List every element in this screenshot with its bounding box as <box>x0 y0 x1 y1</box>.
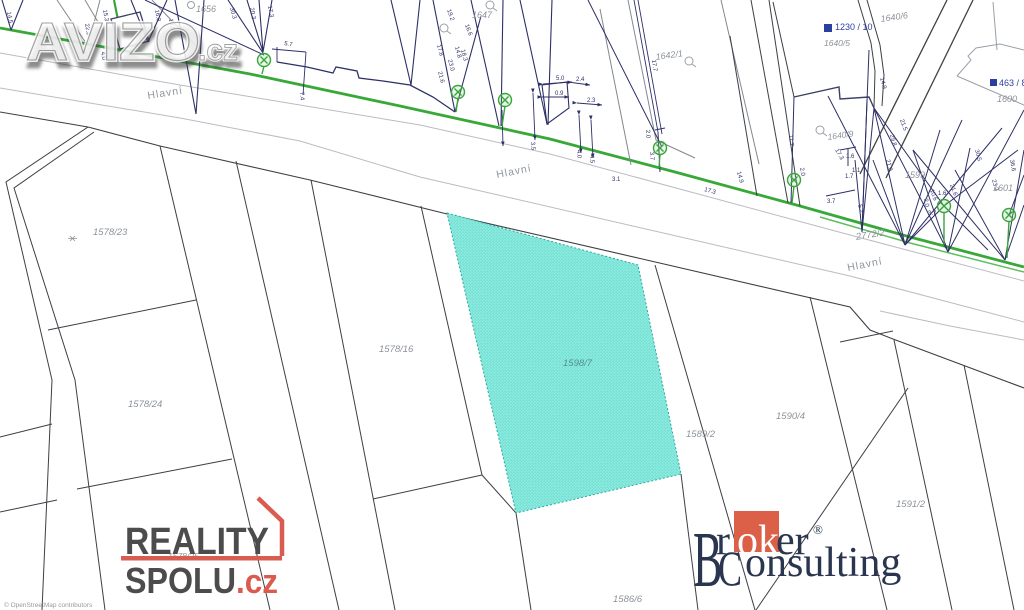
svg-text:1589/2: 1589/2 <box>686 429 716 440</box>
svg-text:0.9: 0.9 <box>555 91 564 97</box>
svg-text:C: C <box>718 541 742 596</box>
svg-text:1.7: 1.7 <box>845 174 854 180</box>
svg-text:2.0: 2.0 <box>644 130 651 139</box>
svg-text:1.1: 1.1 <box>852 168 861 174</box>
svg-text:© OpenStreetMap contributors: © OpenStreetMap contributors <box>4 601 93 609</box>
svg-text:3.7: 3.7 <box>648 152 655 161</box>
svg-text:2.4: 2.4 <box>576 77 585 83</box>
svg-text:5.0: 5.0 <box>556 76 565 82</box>
svg-text:1578/16: 1578/16 <box>379 344 414 355</box>
svg-text:11.7: 11.7 <box>787 135 794 147</box>
svg-text:1640/5: 1640/5 <box>824 38 850 48</box>
svg-text:1230 / 10: 1230 / 10 <box>835 22 873 32</box>
svg-text:1599: 1599 <box>905 170 925 180</box>
svg-text:4.0: 4.0 <box>575 150 582 159</box>
svg-text:.cz: .cz <box>236 563 278 601</box>
svg-text:1590/4: 1590/4 <box>776 411 805 422</box>
svg-text:onsulting: onsulting <box>745 540 901 586</box>
svg-text:1578/24: 1578/24 <box>128 399 162 410</box>
svg-text:AVIZO: AVIZO <box>26 12 200 72</box>
svg-text:3.7: 3.7 <box>827 199 836 205</box>
svg-text:1.6: 1.6 <box>846 154 855 160</box>
svg-text:.cz: .cz <box>198 34 238 67</box>
svg-text:4.5: 4.5 <box>588 155 595 164</box>
svg-text:®: ® <box>813 522 823 537</box>
svg-text:3.7: 3.7 <box>928 211 937 217</box>
svg-text:1598/7: 1598/7 <box>563 358 593 369</box>
svg-text:1.6: 1.6 <box>938 191 947 197</box>
svg-text:1591/2: 1591/2 <box>896 499 926 510</box>
svg-text:SPOLU: SPOLU <box>125 560 236 601</box>
svg-text:1578/23: 1578/23 <box>93 227 128 238</box>
svg-text:2.3: 2.3 <box>587 98 596 104</box>
svg-text:1601: 1601 <box>993 183 1013 193</box>
svg-text:3.5: 3.5 <box>529 142 536 151</box>
svg-text:7.4: 7.4 <box>298 92 305 101</box>
svg-text:1586/6: 1586/6 <box>613 594 643 605</box>
svg-text:1600: 1600 <box>997 94 1017 104</box>
svg-text:1647: 1647 <box>472 10 493 20</box>
svg-text:463 / 8: 463 / 8 <box>999 78 1024 88</box>
svg-text:3.1: 3.1 <box>612 177 621 183</box>
